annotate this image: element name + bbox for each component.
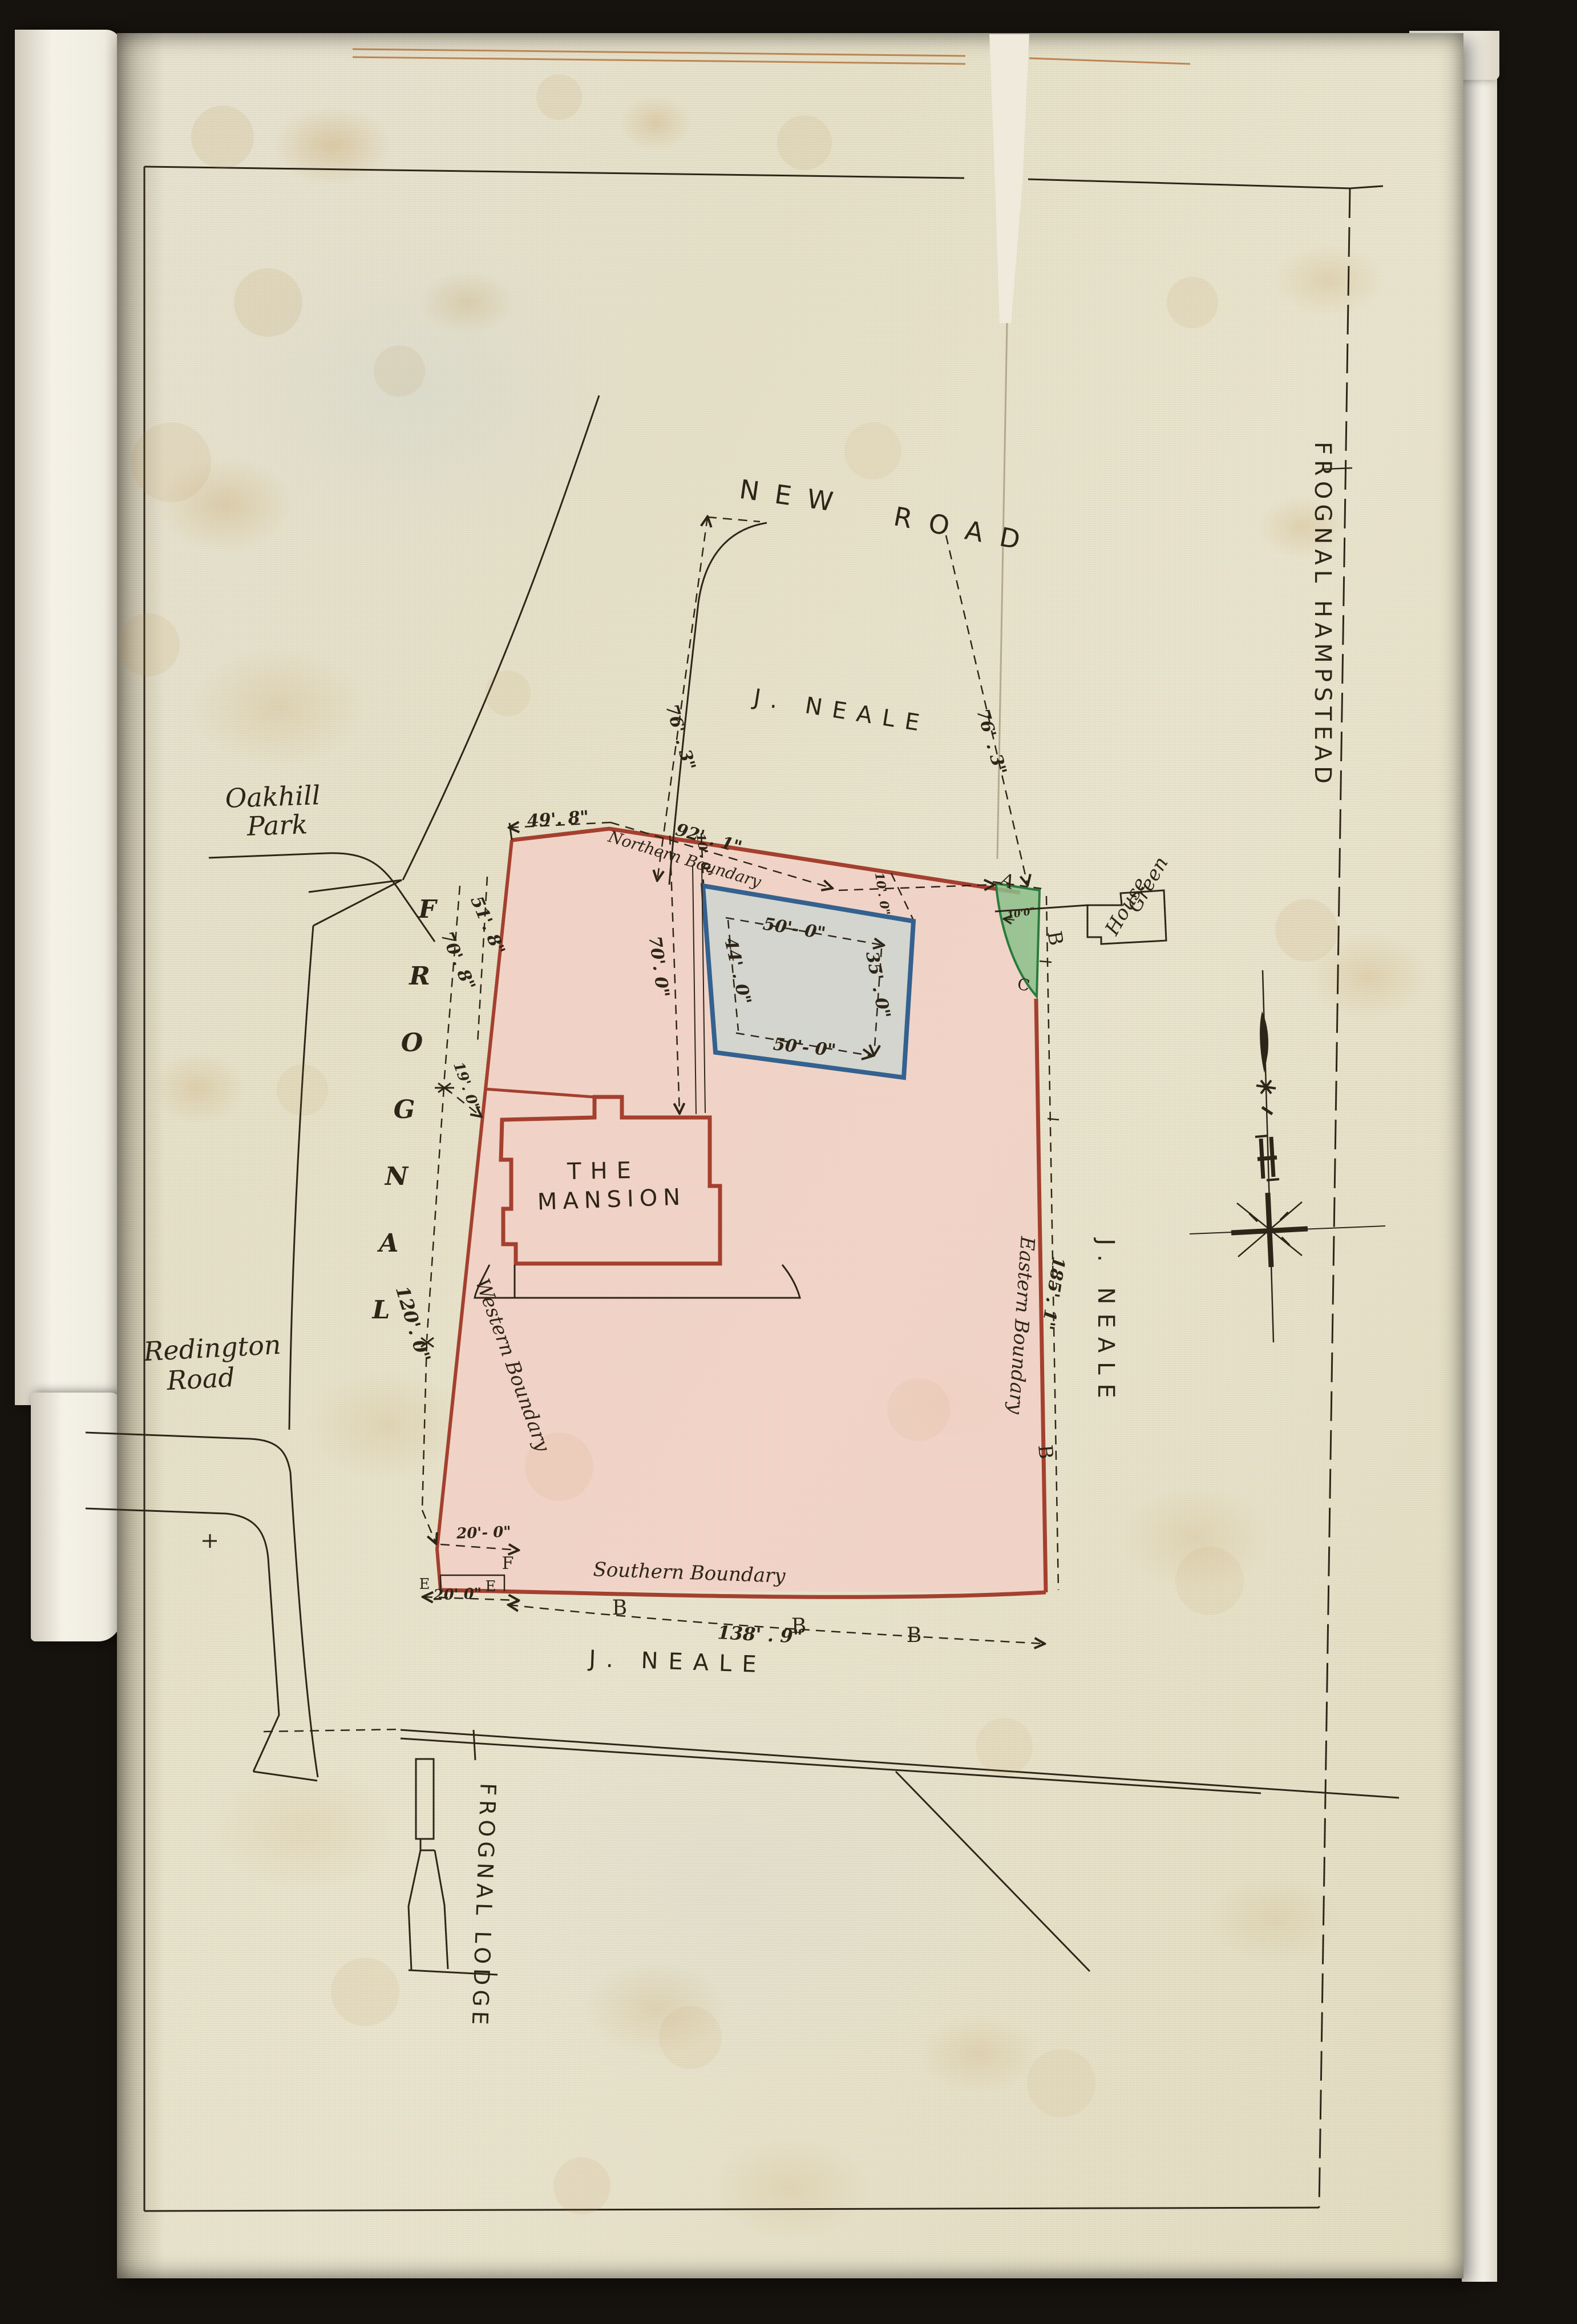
compass-rose-icon (1190, 970, 1385, 1342)
survey-drawing (0, 0, 1577, 2324)
sheet-tear-fold (989, 34, 1029, 859)
scanned-plan-page: NEWROADFROGNALFROGNAL HAMPSTEADFROGNAL L… (0, 0, 1577, 2324)
blue-garden-plot (703, 886, 913, 1078)
top-edge-rules (353, 49, 1190, 64)
